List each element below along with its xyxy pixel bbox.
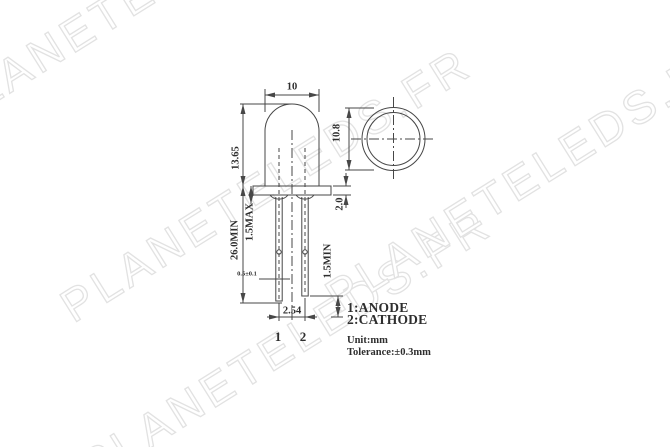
dim-label-body-height: 13.65 xyxy=(231,146,242,170)
dim-lead-tip-1-5min xyxy=(310,296,343,317)
dim-label-pitch: 2.54 xyxy=(283,306,301,317)
dim-label-lead-tip: 1.5MIN xyxy=(323,244,334,279)
top-view xyxy=(351,97,436,181)
dim-label-standoff: 1.5MAX xyxy=(245,203,256,241)
front-view xyxy=(253,104,331,321)
pin-2-number: 2 xyxy=(300,329,307,345)
dim-label-lead-length: 26.0MIN xyxy=(230,220,241,260)
drawing-canvas xyxy=(0,0,670,447)
note-unit: Unit:mm xyxy=(347,335,388,346)
dim-label-lead-diameter: 0.5±0.1 xyxy=(237,271,257,278)
dim-label-flange: 2.0 xyxy=(335,197,346,210)
pin-1-number: 1 xyxy=(275,329,282,345)
dim-label-top-diameter: 10.8 xyxy=(332,124,343,142)
legend-cathode: 2:CATHODE xyxy=(347,312,427,328)
dim-body-height-13-65 xyxy=(240,104,292,186)
led-dimension-drawing: PLANETELEDS.FR PLANETELEDS.FR PLANETELED… xyxy=(0,0,670,447)
note-tolerance: Tolerance:±0.3mm xyxy=(347,347,431,358)
dim-label-width: 10 xyxy=(287,82,298,93)
